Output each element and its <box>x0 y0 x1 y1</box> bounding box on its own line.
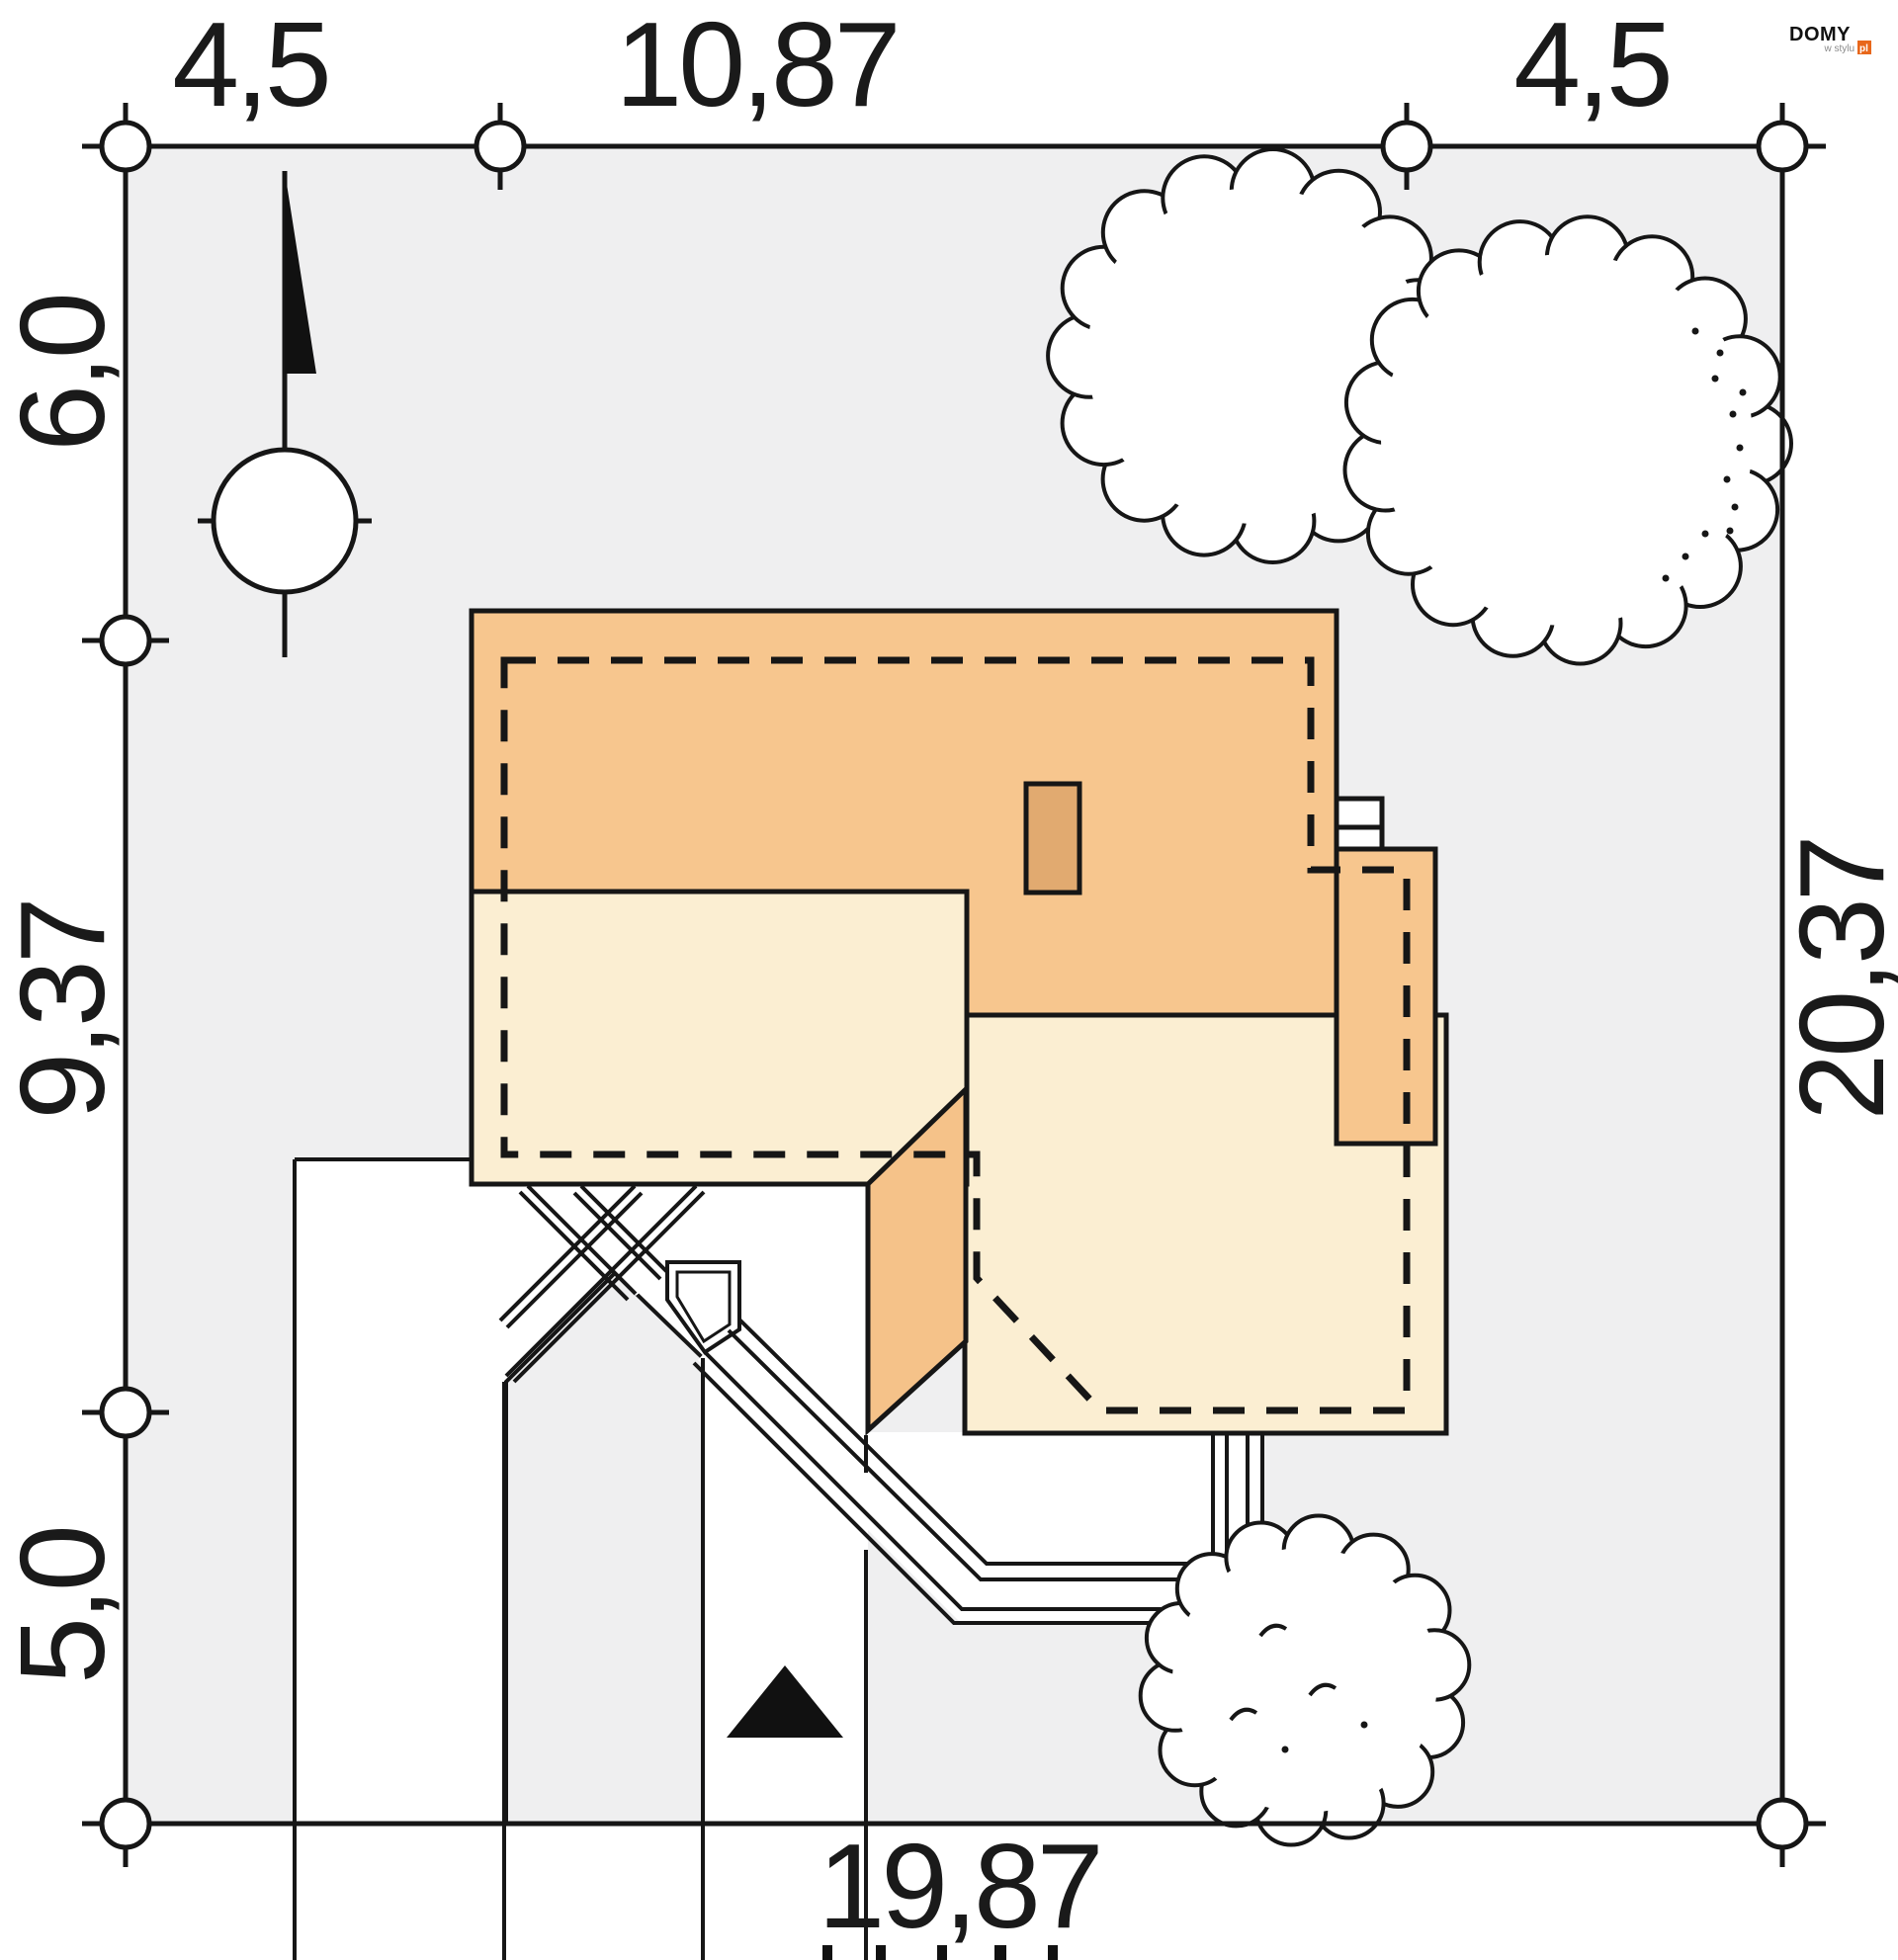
dim-right: 20,37 <box>1774 838 1898 1120</box>
lawn-wedge <box>506 1273 703 1824</box>
site-plan: 4,5 10,87 4,5 6,0 9,37 5,0 20,37 19,87 D… <box>0 0 1898 1960</box>
logo-badge-text: pl <box>1859 43 1868 54</box>
dim-top-middle: 10,87 <box>615 0 897 131</box>
dim-left-lower: 5,0 <box>0 1528 129 1684</box>
roof-garage <box>472 892 967 1184</box>
logo-subtitle: w stylu <box>1823 43 1855 54</box>
dim-left-upper: 6,0 <box>0 296 129 452</box>
dim-left-middle: 9,37 <box>0 900 129 1119</box>
dim-bottom: 19,87 <box>818 1819 1099 1953</box>
logo[interactable]: DOMY w stylu pl <box>1789 24 1871 54</box>
roof-dormer <box>1337 799 1382 849</box>
dim-top-right: 4,5 <box>1513 0 1670 131</box>
roof-side-wing <box>1337 849 1435 1144</box>
logo-title: DOMY <box>1789 24 1851 45</box>
dim-top-left: 4,5 <box>172 0 328 131</box>
chimney <box>1026 784 1079 893</box>
